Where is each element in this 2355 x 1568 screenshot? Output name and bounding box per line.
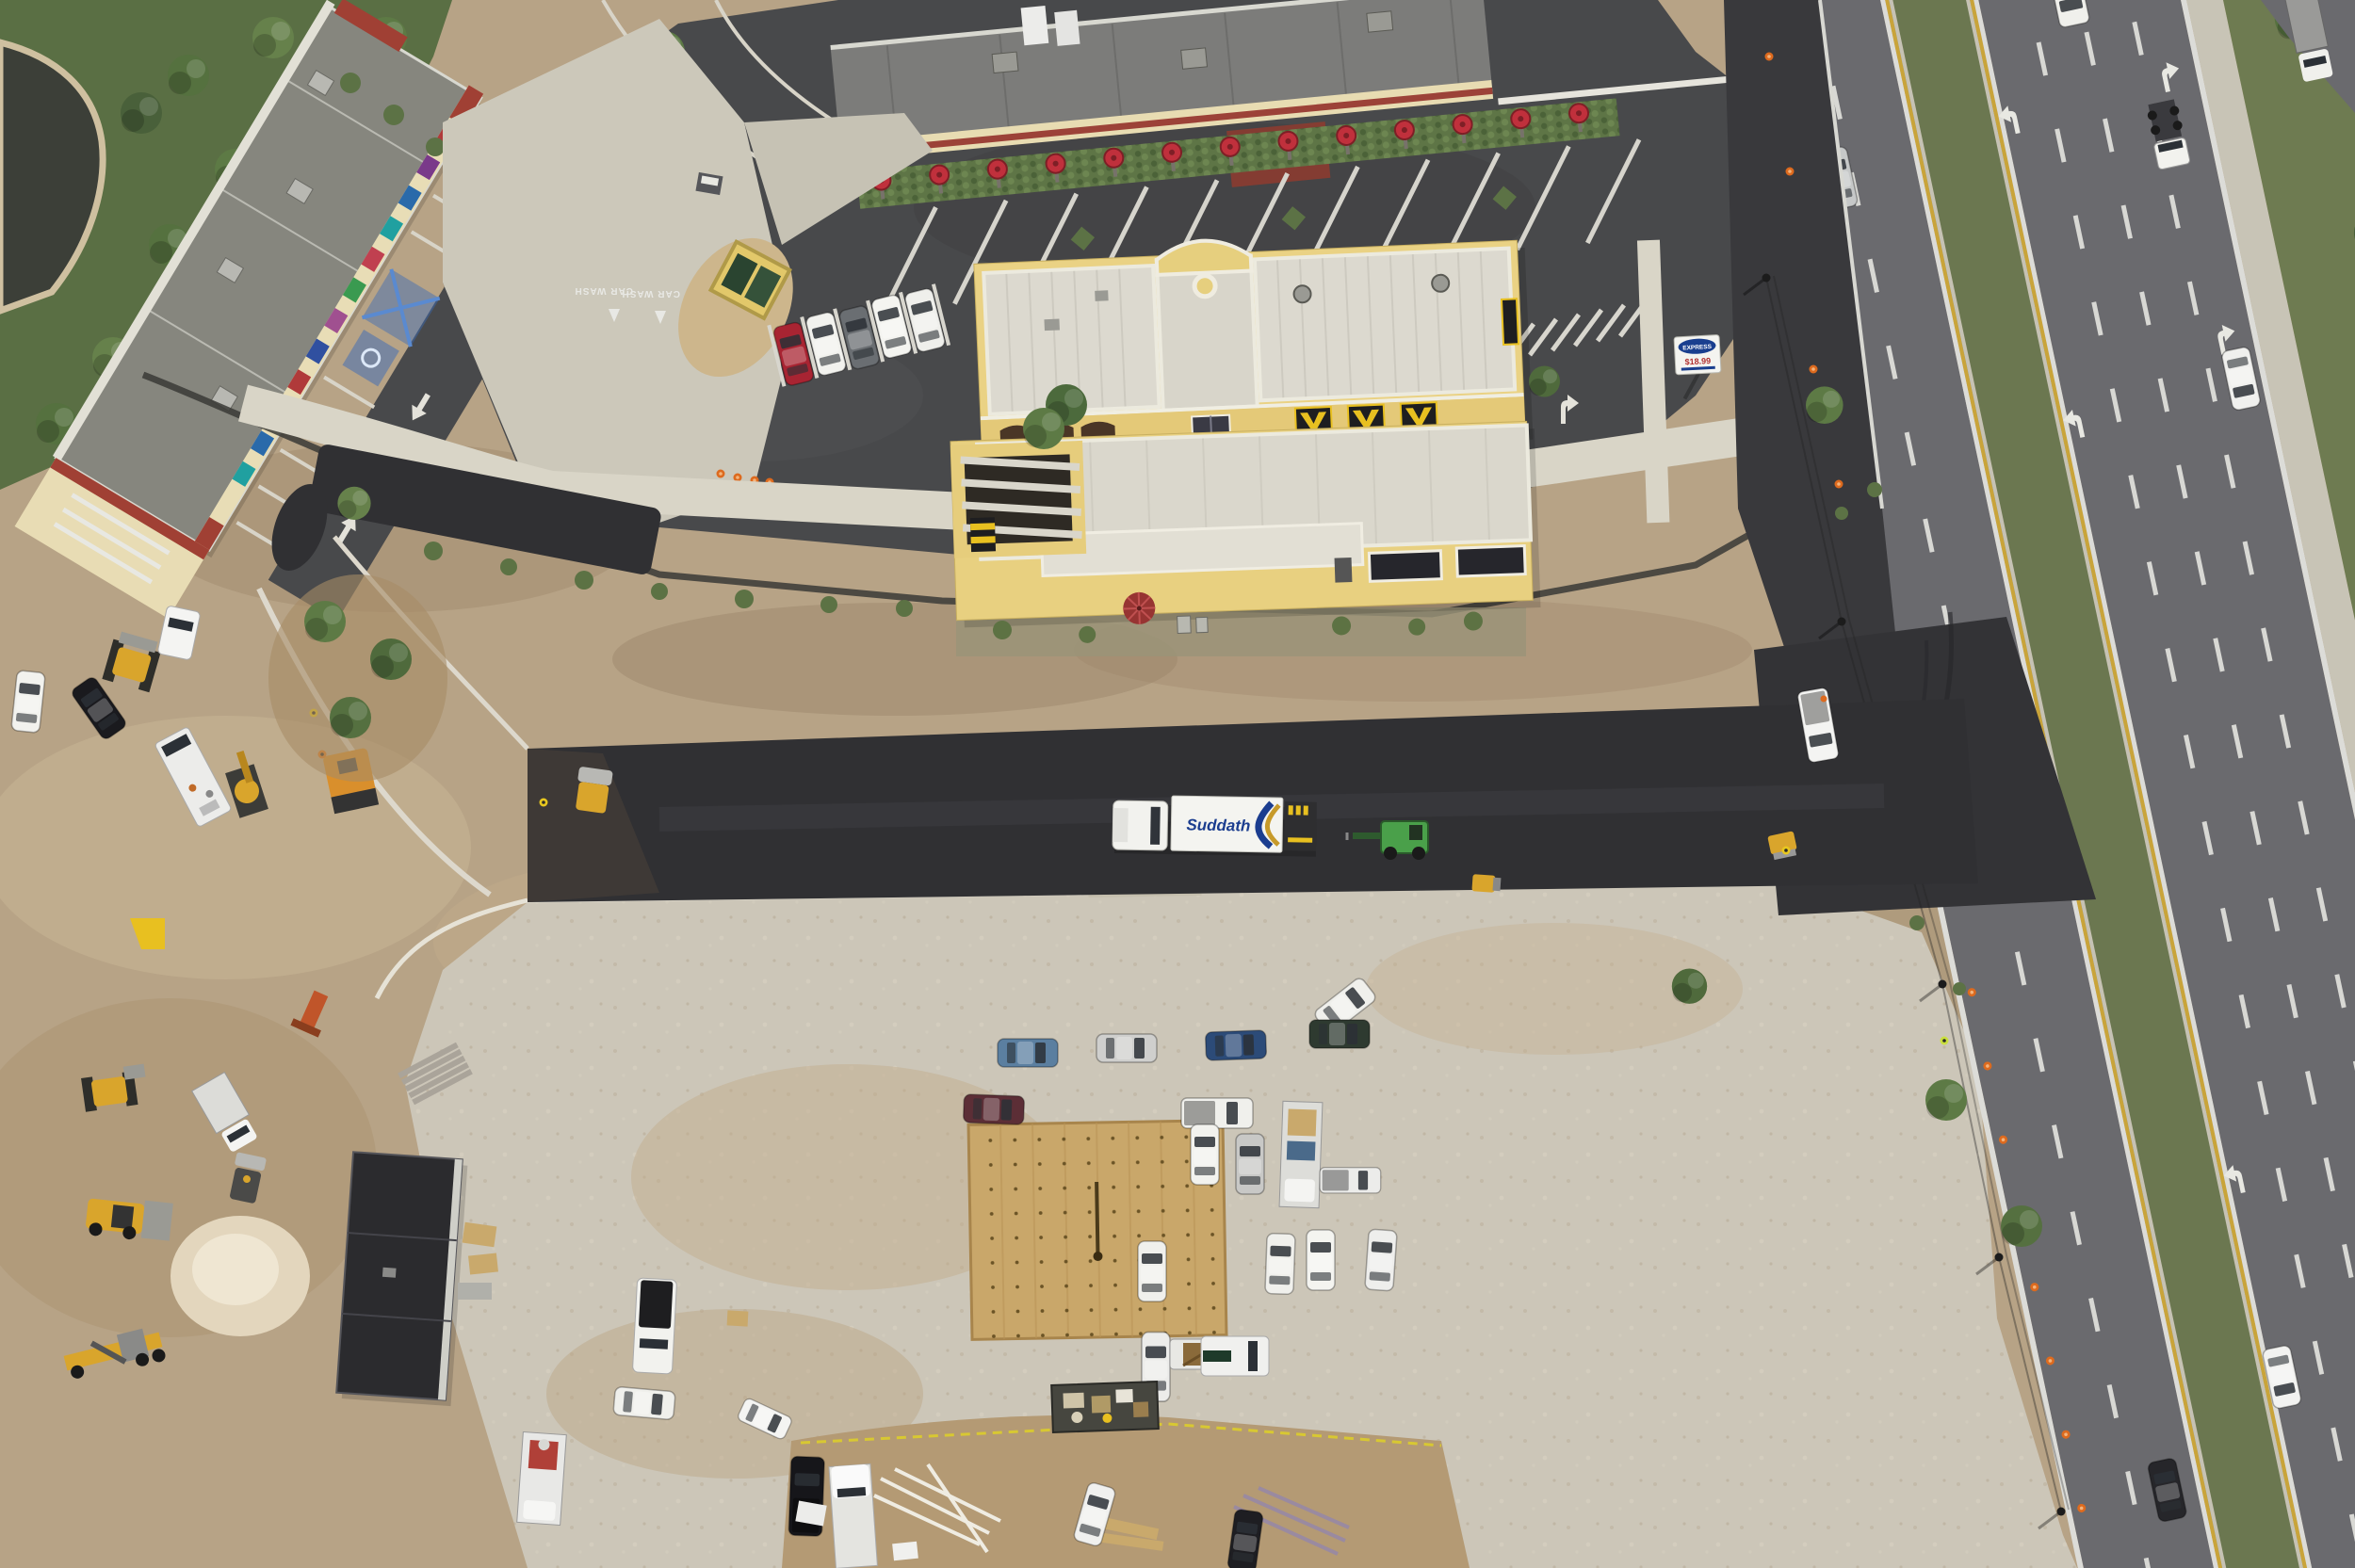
- aerial-scene: CAR WASH CAR WASH: [0, 0, 2355, 1568]
- worker: [1941, 1037, 1949, 1045]
- aerial-photo: CAR WASH CAR WASH: [0, 0, 2355, 1568]
- sand-stockpile: [171, 1216, 310, 1336]
- debris-dumpster: [1051, 1382, 1159, 1432]
- worker: [1782, 847, 1791, 855]
- medallion: [1194, 275, 1216, 297]
- gravel-staging-lot: [377, 837, 2077, 1568]
- pickup: [1181, 1098, 1253, 1128]
- car: [1096, 1034, 1157, 1062]
- pergola-entrance: [950, 441, 1086, 558]
- east-bay: [1502, 299, 1519, 345]
- car: [1138, 1241, 1166, 1301]
- car: [998, 1039, 1058, 1067]
- white-truck-south: [829, 1464, 877, 1568]
- pickup: [1320, 1168, 1381, 1193]
- parked-van: [1021, 6, 1049, 45]
- car: [963, 1094, 1024, 1124]
- car: [1265, 1233, 1295, 1294]
- gear-truck: [517, 1432, 567, 1526]
- flatbed-truck: [1279, 1101, 1323, 1207]
- car: [613, 1386, 675, 1419]
- worker: [540, 799, 548, 807]
- svg-text:$18.99: $18.99: [1684, 356, 1711, 366]
- suv: [1205, 1030, 1266, 1060]
- suv: [1309, 1020, 1370, 1048]
- parked-car: [1054, 10, 1080, 46]
- suv: [1236, 1134, 1264, 1194]
- truck-brand-label: Suddath: [1186, 816, 1250, 834]
- svg-text:CAR WASH: CAR WASH: [622, 288, 680, 299]
- suv: [1191, 1124, 1219, 1185]
- car: [1307, 1230, 1335, 1290]
- car: [1365, 1229, 1397, 1291]
- pickup-bed-cover: [632, 1278, 676, 1374]
- car: [11, 671, 46, 734]
- center-post-shadow: [1096, 1182, 1097, 1254]
- office-trailer: [336, 1152, 468, 1406]
- plywood-pad: [968, 1121, 1226, 1340]
- truck-cab-white: [1201, 1336, 1269, 1376]
- suddath-truck: Suddath: [1113, 795, 1317, 857]
